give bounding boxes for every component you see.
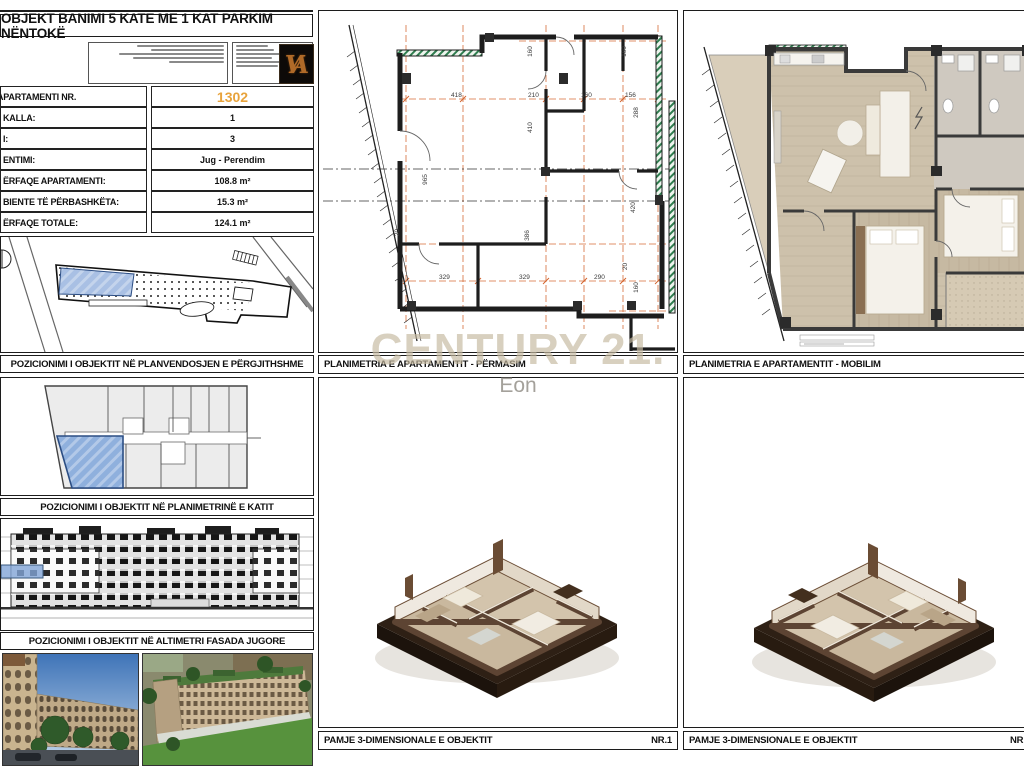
plan-sheet: OBJEKT BANIMI 5 KATE ME 1 KAT PARKIM NËN… bbox=[0, 0, 1024, 768]
site-plan-caption: POZICIONIMI I OBJEKTIT NË PLANVENDOSJEN … bbox=[0, 355, 314, 373]
view3d-left-caption: PAMJE 3-DIMENSIONALE E OBJEKTIT NR.1 bbox=[318, 731, 678, 750]
storey-plan-drawing bbox=[1, 378, 313, 495]
view3d-right-caption-text: PAMJE 3-DIMENSIONALE E OBJEKTIT bbox=[689, 735, 857, 746]
tiny-text-line bbox=[236, 65, 278, 67]
photo-street-view-image bbox=[3, 654, 138, 765]
info-row-label: ËRFAQE APARTAMENTI: bbox=[0, 170, 147, 191]
info-row-label: ËRFAQE TOTALE: bbox=[0, 212, 147, 233]
info-row-label: KALLA: bbox=[0, 107, 147, 128]
info-table-row: BIENTE TË PËRBASHKËTA:15.3 m² bbox=[0, 191, 314, 212]
info-row-value: 1302 bbox=[151, 86, 314, 107]
photo-aerial-view-image bbox=[143, 654, 312, 765]
photo-street-view bbox=[2, 653, 139, 766]
view3d-left-number: NR.1 bbox=[651, 735, 672, 746]
info-row-value: Jug - Perendim bbox=[151, 149, 314, 170]
tiny-text-line bbox=[236, 49, 274, 51]
elevation-panel bbox=[0, 518, 314, 631]
firm-info-block-1 bbox=[88, 42, 228, 84]
info-table-row: ËRFAQE TOTALE:124.1 m² bbox=[0, 212, 314, 233]
furnished-plan-drawing bbox=[684, 11, 1024, 352]
info-row-value: 108.8 m² bbox=[151, 170, 314, 191]
tiny-text-line bbox=[236, 53, 282, 55]
info-row-label: ENTIMI: bbox=[0, 149, 147, 170]
dimension-plan-panel bbox=[318, 10, 678, 353]
info-table-row: I:3 bbox=[0, 128, 314, 149]
tiny-text-line bbox=[137, 45, 224, 47]
view3d-left-panel bbox=[318, 377, 678, 728]
info-row-value: 124.1 m² bbox=[151, 212, 314, 233]
tiny-text-line bbox=[169, 61, 224, 63]
info-row-label: I: bbox=[0, 128, 147, 149]
sheet-title-text: OBJEKT BANIMI 5 KATE ME 1 KAT PARKIM NËN… bbox=[1, 11, 312, 41]
elevation-caption: POZICIONIMI I OBJEKTIT NË ALTIMETRI FASA… bbox=[0, 632, 314, 650]
view3d-right-number: NR bbox=[1010, 735, 1023, 746]
view3d-right-panel bbox=[683, 377, 1024, 728]
site-plan-drawing bbox=[1, 237, 313, 352]
elevation-drawing bbox=[1, 519, 313, 630]
photo-aerial-view bbox=[142, 653, 313, 766]
storey-plan-caption-text: POZICIONIMI I OBJEKTIT NË PLANIMETRINË E… bbox=[40, 502, 273, 513]
tiny-text-line bbox=[119, 53, 224, 55]
view3d-right-render bbox=[724, 450, 1024, 720]
info-table-row: ENTIMI:Jug - Perendim bbox=[0, 149, 314, 170]
view3d-left-caption-text: PAMJE 3-DIMENSIONALE E OBJEKTIT bbox=[324, 735, 492, 746]
info-table-row: KALLA:1 bbox=[0, 107, 314, 128]
tiny-text-line bbox=[236, 45, 268, 47]
furnished-plan-caption: PLANIMETRIA E APARTAMENTIT - MOBILIM bbox=[683, 355, 1024, 374]
site-plan-caption-text: POZICIONIMI I OBJEKTIT NË PLANVENDOSJEN … bbox=[11, 359, 304, 370]
elevation-caption-text: POZICIONIMI I OBJEKTIT NË ALTIMETRI FASA… bbox=[29, 636, 285, 647]
furnished-plan-panel bbox=[683, 10, 1024, 353]
tiny-text-line bbox=[151, 49, 224, 51]
view3d-right-caption: PAMJE 3-DIMENSIONALE E OBJEKTIT NR bbox=[683, 731, 1024, 750]
info-row-value: 15.3 m² bbox=[151, 191, 314, 212]
info-row-label: APARTAMENTI NR. bbox=[0, 86, 147, 107]
developer-logo: VA bbox=[279, 44, 314, 84]
dimension-plan-caption: PLANIMETRIA E APARTAMENTIT - PËRMASIM bbox=[318, 355, 678, 374]
furnished-plan-caption-text: PLANIMETRIA E APARTAMENTIT - MOBILIM bbox=[689, 359, 881, 370]
info-row-value: 1 bbox=[151, 107, 314, 128]
tiny-text-line bbox=[236, 57, 272, 59]
apartment-info-table: APARTAMENTI NR.1302KALLA:1I:3ENTIMI:Jug … bbox=[0, 86, 315, 233]
info-table-row: APARTAMENTI NR.1302 bbox=[0, 86, 314, 107]
info-table-row: ËRFAQE APARTAMENTI:108.8 m² bbox=[0, 170, 314, 191]
info-row-label: BIENTE TË PËRBASHKËTA: bbox=[0, 191, 147, 212]
header-strip: VA bbox=[0, 39, 313, 86]
storey-plan-caption: POZICIONIMI I OBJEKTIT NË PLANIMETRINË E… bbox=[0, 498, 314, 516]
logo-monogram: VA bbox=[285, 50, 308, 79]
sheet-title: OBJEKT BANIMI 5 KATE ME 1 KAT PARKIM NËN… bbox=[0, 14, 313, 37]
info-row-value: 3 bbox=[151, 128, 314, 149]
dimension-plan-drawing bbox=[319, 11, 677, 352]
dimension-plan-caption-text: PLANIMETRIA E APARTAMENTIT - PËRMASIM bbox=[324, 359, 526, 370]
site-plan-panel bbox=[0, 236, 314, 353]
storey-plan-panel bbox=[0, 377, 314, 496]
view3d-left-render bbox=[347, 446, 647, 716]
tiny-text-line bbox=[133, 57, 224, 59]
